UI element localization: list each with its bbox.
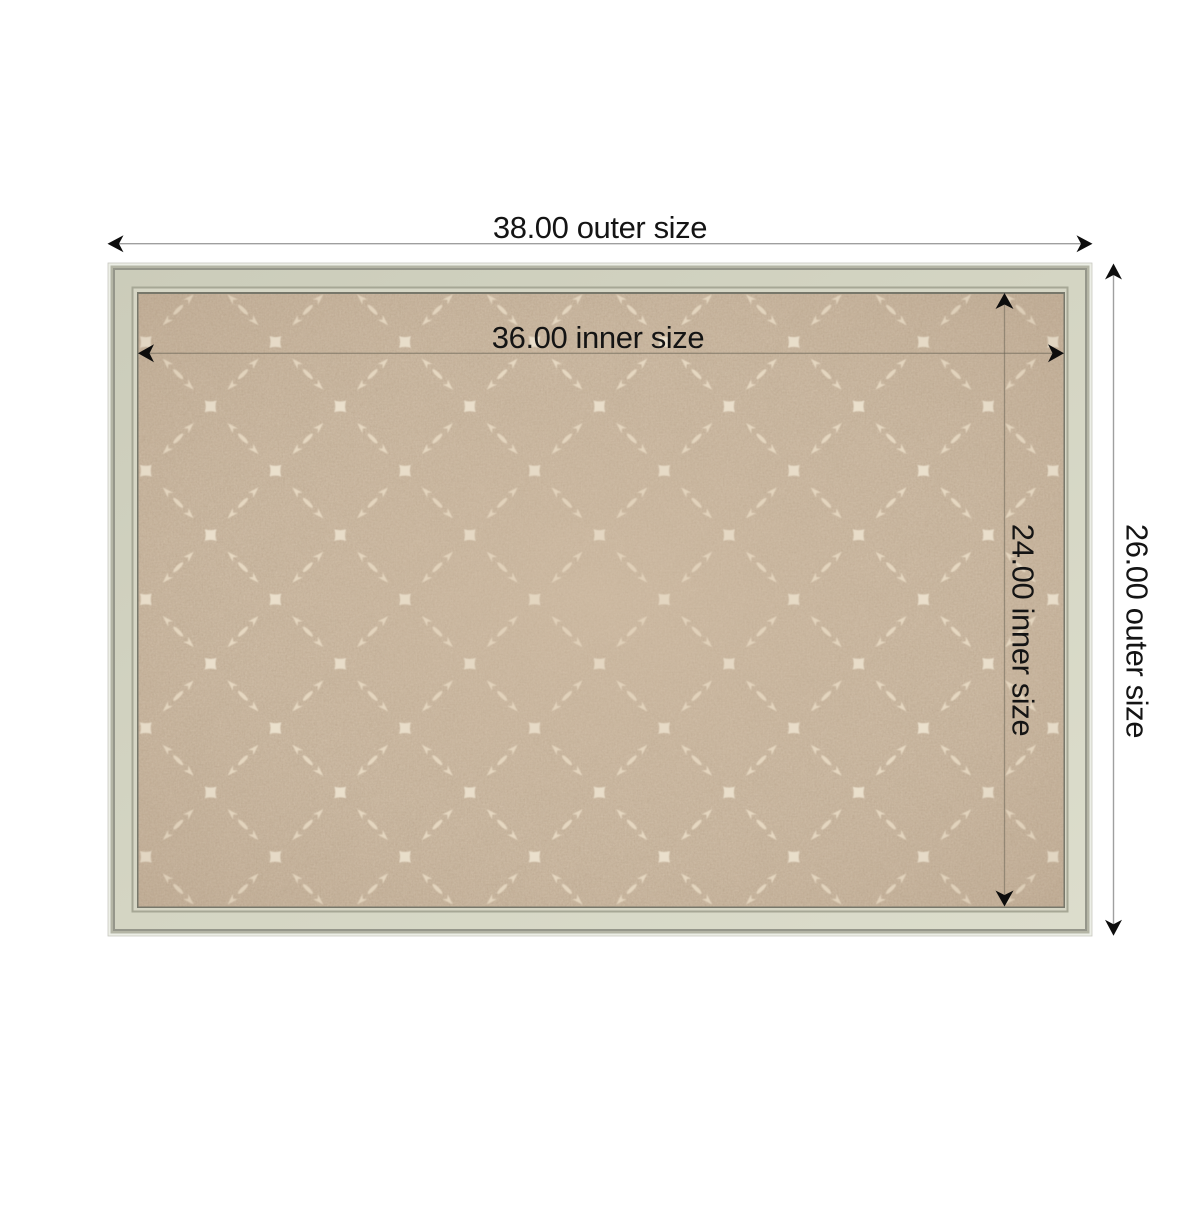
svg-text:38.00 outer size: 38.00 outer size bbox=[493, 210, 707, 245]
svg-text:26.00 outer size: 26.00 outer size bbox=[1120, 524, 1155, 738]
svg-text:24.00 inner size: 24.00 inner size bbox=[1006, 524, 1041, 736]
svg-text:36.00 inner size: 36.00 inner size bbox=[492, 320, 704, 355]
